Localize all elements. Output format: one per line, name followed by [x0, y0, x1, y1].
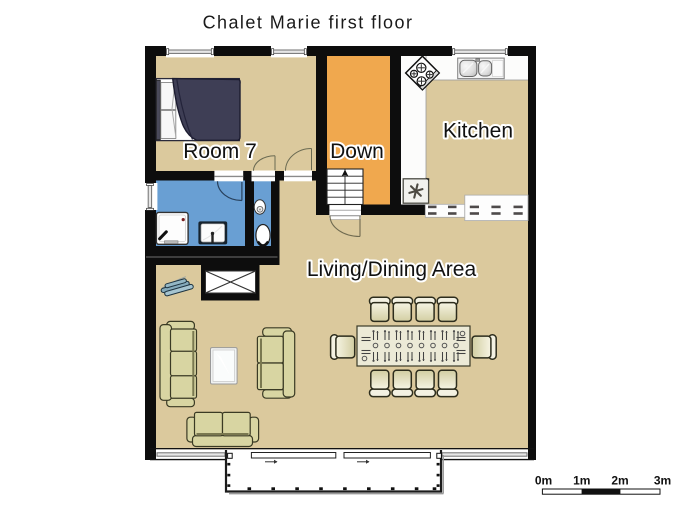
svg-text:Chalet Marie first floor: Chalet Marie first floor — [203, 12, 414, 32]
svg-text:0m: 0m — [535, 474, 552, 488]
svg-text:Down: Down — [330, 140, 384, 163]
svg-text:3m: 3m — [654, 474, 671, 488]
svg-text:Living/Dining Area: Living/Dining Area — [307, 258, 477, 281]
svg-text:Room 7: Room 7 — [183, 140, 257, 163]
svg-text:2m: 2m — [611, 474, 628, 488]
svg-text:1m: 1m — [573, 474, 590, 488]
svg-text:Kitchen: Kitchen — [443, 120, 513, 143]
